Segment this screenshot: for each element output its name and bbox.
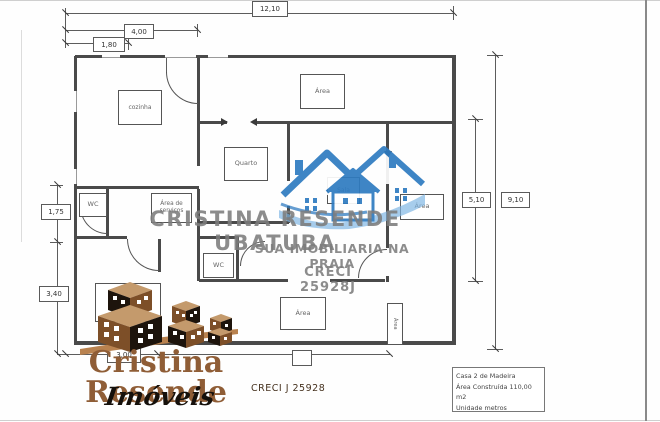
buildings-logo-icon: [80, 280, 240, 355]
room-label-quarto: Quarto: [224, 147, 268, 181]
wall: [74, 184, 77, 344]
wall: [75, 55, 102, 58]
dimension-line: [495, 55, 496, 350]
wall: [75, 186, 199, 189]
door-swing-arrow: [221, 118, 228, 126]
dimension-label-right-overall: 9,10: [501, 192, 530, 208]
room-label-cozinha: cozinha: [118, 90, 162, 125]
door-arc: [166, 72, 198, 104]
brand-creci: CRECI J 25928: [251, 383, 325, 394]
page-border-right: [645, 0, 647, 421]
room-label-area-vertical: Área: [387, 303, 403, 345]
door-swing-arrow: [250, 118, 257, 126]
room-label-wc-lower: WC: [203, 253, 234, 278]
floorplan-listing-image: 12,10 4,00 1,80 1,75 3,40 5,10 9,10 3,00…: [0, 0, 660, 422]
dimension-label-small-width: 1,80: [93, 37, 125, 52]
room-label-area-top: Área: [300, 74, 345, 109]
wall: [74, 56, 77, 91]
dimension-label-left-upper: 1,75: [41, 204, 71, 220]
page-border-top: [0, 0, 660, 1]
dimension-label-overall-width: 12,10: [252, 1, 288, 17]
room-label-area-bottom: Área: [280, 297, 326, 330]
wall: [74, 112, 77, 169]
wall: [120, 55, 165, 58]
wall: [197, 124, 200, 166]
door-leaf: [166, 58, 167, 73]
page-border-left: [21, 30, 22, 242]
info-box: Casa 2 de Madeira Área Construída 110,00…: [452, 367, 545, 412]
wall: [239, 279, 288, 282]
dimension-label-left-lower: 3,40: [39, 286, 69, 302]
watermark-line3: CRECI 25928J: [283, 265, 373, 295]
dimension-label-right-inner: 5,10: [462, 192, 491, 208]
wall: [228, 55, 455, 58]
brand-subtitle: Imóveis: [88, 383, 232, 411]
wall: [452, 55, 456, 344]
info-line-unit: Unidade metros: [456, 403, 542, 414]
page-border-bottom: [0, 420, 660, 421]
info-line-house-type: Casa 2 de Madeira: [456, 371, 542, 382]
info-line-built-area: Área Construída 110,00 m2: [456, 382, 542, 403]
dimension-label-kitchen-width: 4,00: [124, 24, 154, 39]
